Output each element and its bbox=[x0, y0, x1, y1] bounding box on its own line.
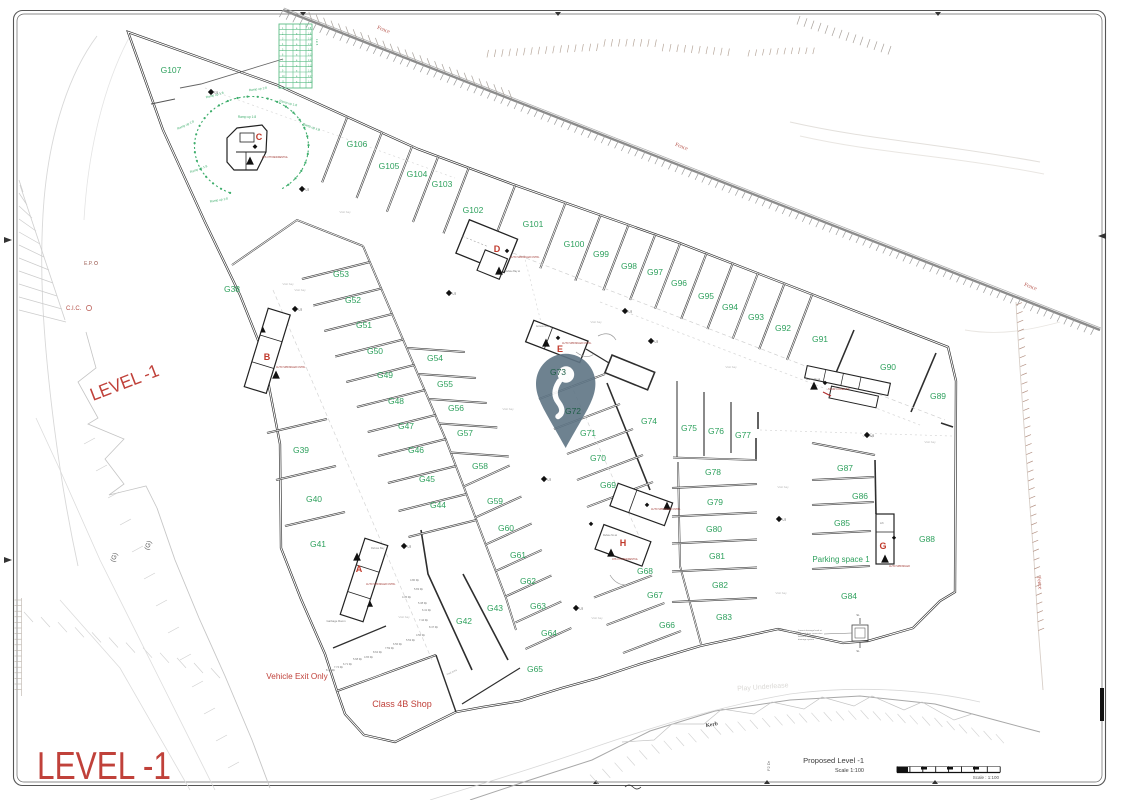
svg-text:drainage system: drainage system bbox=[798, 638, 814, 641]
svg-text:8.47 Rp: 8.47 Rp bbox=[429, 625, 439, 629]
svg-text:G63: G63 bbox=[530, 601, 546, 611]
svg-text:6.41 Rp: 6.41 Rp bbox=[422, 608, 432, 612]
svg-text:G61: G61 bbox=[510, 550, 526, 560]
svg-text:7.59 Rp: 7.59 Rp bbox=[385, 646, 395, 650]
svg-text:B: B bbox=[264, 352, 271, 362]
svg-text:Visit bay: Visit bay bbox=[591, 616, 603, 620]
svg-text:LS: LS bbox=[215, 91, 219, 95]
svg-text:4.65 Rp: 4.65 Rp bbox=[364, 655, 374, 659]
svg-text:covered drain connection: covered drain connection bbox=[798, 632, 823, 635]
svg-text:G46: G46 bbox=[408, 445, 424, 455]
svg-text:G73: G73 bbox=[550, 367, 566, 377]
svg-text:Scale : 1:100: Scale : 1:100 bbox=[973, 775, 1000, 780]
svg-text:AUTO SPRINKLER CNTRL: AUTO SPRINKLER CNTRL bbox=[366, 583, 396, 586]
svg-text:Visit bay: Visit bay bbox=[294, 288, 306, 292]
svg-text:G51: G51 bbox=[356, 320, 372, 330]
svg-text:G47: G47 bbox=[398, 421, 414, 431]
svg-text:Visit bay: Visit bay bbox=[777, 485, 789, 489]
svg-text:G92: G92 bbox=[775, 323, 791, 333]
svg-text:Refuse Bay at: Refuse Bay at bbox=[505, 270, 520, 273]
svg-text:G89: G89 bbox=[930, 391, 946, 401]
svg-text:Vehicle Exit Only: Vehicle Exit Only bbox=[266, 672, 328, 681]
svg-text:LS: LS bbox=[408, 545, 412, 549]
svg-text:LS: LS bbox=[655, 340, 659, 344]
svg-text:6.71 Rp: 6.71 Rp bbox=[343, 662, 353, 666]
svg-text:G74: G74 bbox=[641, 416, 657, 426]
svg-text:G85: G85 bbox=[834, 518, 850, 528]
svg-text:G68: G68 bbox=[637, 566, 653, 576]
svg-text:LEVEL -1: LEVEL -1 bbox=[37, 745, 171, 788]
svg-text:Visit bay: Visit bay bbox=[775, 591, 787, 595]
svg-text:G105: G105 bbox=[379, 161, 400, 171]
svg-text:7.74 Rp: 7.74 Rp bbox=[334, 665, 344, 669]
svg-text:G80: G80 bbox=[706, 524, 722, 534]
svg-text:LS: LS bbox=[783, 518, 787, 522]
svg-text:G79: G79 bbox=[707, 497, 723, 507]
svg-text:G97: G97 bbox=[647, 267, 663, 277]
svg-text:G98: G98 bbox=[621, 261, 637, 271]
svg-text:G103: G103 bbox=[432, 179, 453, 189]
svg-text:AUTO SPRINKLER CNTRL: AUTO SPRINKLER CNTRL bbox=[276, 366, 306, 369]
svg-text:G45: G45 bbox=[419, 474, 435, 484]
svg-text:Visit bay: Visit bay bbox=[282, 282, 294, 286]
svg-text:G49: G49 bbox=[377, 370, 393, 380]
svg-text:4.80 Rp: 4.80 Rp bbox=[410, 578, 420, 582]
svg-text:7.44 Rp: 7.44 Rp bbox=[419, 618, 429, 622]
svg-text:G94: G94 bbox=[722, 302, 738, 312]
svg-text:G77: G77 bbox=[735, 430, 751, 440]
svg-text:LS: LS bbox=[580, 607, 584, 611]
svg-text:G62: G62 bbox=[520, 576, 536, 586]
svg-text:1:14: 1:14 bbox=[308, 60, 313, 62]
svg-text:H: H bbox=[620, 538, 627, 548]
svg-text:Garbage Room: Garbage Room bbox=[326, 619, 346, 623]
svg-text:G96: G96 bbox=[671, 278, 687, 288]
svg-text:G69: G69 bbox=[600, 480, 616, 490]
svg-text:Access No at: Access No at bbox=[806, 378, 820, 381]
svg-text:Visit bay: Visit bay bbox=[924, 440, 936, 444]
svg-text:G104: G104 bbox=[407, 169, 428, 179]
svg-text:5.83 Rp: 5.83 Rp bbox=[414, 587, 424, 591]
svg-text:G55: G55 bbox=[437, 379, 453, 389]
svg-text:G84: G84 bbox=[841, 591, 857, 601]
svg-text:5.53 Rp: 5.53 Rp bbox=[406, 638, 416, 642]
svg-text:G76: G76 bbox=[708, 426, 724, 436]
svg-text:Lowest drainage level at: Lowest drainage level at bbox=[798, 629, 822, 632]
svg-text:G102: G102 bbox=[463, 205, 484, 215]
svg-text:G72: G72 bbox=[565, 406, 581, 416]
svg-text:AUTO SPRINKLER CNTRL: AUTO SPRINKLER CNTRL bbox=[651, 508, 681, 511]
svg-text:G83: G83 bbox=[716, 612, 732, 622]
svg-text:AUTO SPRINKLER CNTRL: AUTO SPRINKLER CNTRL bbox=[562, 342, 592, 345]
svg-text:A: A bbox=[356, 564, 363, 574]
svg-text:G99: G99 bbox=[593, 249, 609, 259]
svg-text:ATS 4TH RESIDENTIAL: ATS 4TH RESIDENTIAL bbox=[262, 156, 289, 159]
svg-text:G93: G93 bbox=[748, 312, 764, 322]
svg-text:LS: LS bbox=[299, 308, 303, 312]
svg-text:LS: LS bbox=[871, 434, 875, 438]
svg-text:G106: G106 bbox=[347, 139, 368, 149]
svg-text:G107: G107 bbox=[161, 65, 182, 75]
svg-text:G64: G64 bbox=[541, 628, 557, 638]
svg-text:G67: G67 bbox=[647, 590, 663, 600]
svg-text:C: C bbox=[256, 132, 263, 142]
svg-text:G60: G60 bbox=[498, 523, 514, 533]
svg-text:SL: SL bbox=[856, 649, 860, 653]
svg-text:Scale 1:100: Scale 1:100 bbox=[835, 768, 864, 774]
svg-text:E: E bbox=[557, 344, 563, 354]
svg-text:G82: G82 bbox=[712, 580, 728, 590]
svg-text:Proposed Level -1: Proposed Level -1 bbox=[803, 756, 864, 765]
svg-text:G57: G57 bbox=[457, 428, 473, 438]
svg-text:G81: G81 bbox=[709, 551, 725, 561]
svg-text:SL: SL bbox=[856, 613, 860, 617]
svg-text:Refuse Bay: Refuse Bay bbox=[371, 546, 385, 550]
svg-text:G65: G65 bbox=[527, 664, 543, 674]
svg-text:G58: G58 bbox=[472, 461, 488, 471]
svg-text:G42: G42 bbox=[456, 616, 472, 626]
svg-text:G59: G59 bbox=[487, 496, 503, 506]
svg-text:Visit bay: Visit bay bbox=[725, 365, 737, 369]
svg-text:Visit bay: Visit bay bbox=[398, 615, 410, 619]
svg-text:Visit bay: Visit bay bbox=[590, 320, 602, 324]
svg-text:LS: LS bbox=[548, 478, 552, 482]
svg-text:G78: G78 bbox=[705, 467, 721, 477]
svg-text:LS: LS bbox=[306, 188, 310, 192]
svg-text:D: D bbox=[494, 244, 501, 254]
svg-text:Ramp up 1:8: Ramp up 1:8 bbox=[238, 115, 256, 119]
svg-text:G50: G50 bbox=[367, 346, 383, 356]
svg-text:1:11: 1:11 bbox=[308, 44, 313, 46]
svg-text:linked to approved: linked to approved bbox=[798, 635, 817, 638]
svg-text:G88: G88 bbox=[919, 534, 935, 544]
svg-text:G54: G54 bbox=[427, 353, 443, 363]
svg-text:C.I.C.: C.I.C. bbox=[66, 306, 82, 312]
svg-text:1:15: 1:15 bbox=[308, 65, 313, 67]
svg-text:4.50 Rp: 4.50 Rp bbox=[416, 633, 426, 637]
svg-text:G56: G56 bbox=[448, 403, 464, 413]
svg-text:G90: G90 bbox=[880, 362, 896, 372]
svg-text:G95: G95 bbox=[698, 291, 714, 301]
svg-text:5.68 Rp: 5.68 Rp bbox=[353, 657, 363, 661]
svg-text:ATS 4TH RESIDENTIAL: ATS 4TH RESIDENTIAL bbox=[612, 558, 639, 561]
svg-text:G86: G86 bbox=[852, 491, 868, 501]
svg-text:G100: G100 bbox=[564, 239, 585, 249]
svg-text:LS: LS bbox=[453, 292, 457, 296]
svg-text:1:16: 1:16 bbox=[308, 71, 313, 73]
svg-text:G38: G38 bbox=[224, 284, 240, 294]
svg-text:G: G bbox=[879, 541, 886, 551]
svg-text:8.62 Rp: 8.62 Rp bbox=[373, 650, 383, 654]
svg-text:G48: G48 bbox=[388, 396, 404, 406]
svg-text:Visit bay: Visit bay bbox=[502, 407, 514, 411]
svg-text:6.56 Rp: 6.56 Rp bbox=[393, 642, 403, 646]
svg-text:G70: G70 bbox=[590, 453, 606, 463]
svg-text:Refuse No at: Refuse No at bbox=[603, 534, 617, 537]
svg-text:AUTO SPRINKLER: AUTO SPRINKLER bbox=[889, 565, 910, 568]
svg-text:LS: LS bbox=[629, 310, 633, 314]
svg-text:G75: G75 bbox=[681, 423, 697, 433]
svg-text:1:18: 1:18 bbox=[308, 81, 313, 83]
svg-text:5.38 Rp: 5.38 Rp bbox=[418, 601, 428, 605]
svg-text:G71: G71 bbox=[580, 428, 596, 438]
svg-text:STAIR CORE/LIFT: STAIR CORE/LIFT bbox=[828, 387, 850, 391]
svg-text:Class 4B Shop: Class 4B Shop bbox=[372, 699, 432, 709]
svg-text:G87: G87 bbox=[837, 463, 853, 473]
svg-text:1:10: 1:10 bbox=[308, 39, 313, 41]
svg-text:Lift: Lift bbox=[880, 521, 884, 525]
svg-text:4.35 Rp: 4.35 Rp bbox=[402, 595, 412, 599]
svg-text:1:13: 1:13 bbox=[308, 55, 313, 57]
svg-text:G43: G43 bbox=[487, 603, 503, 613]
svg-text:Access No at: Access No at bbox=[536, 325, 550, 328]
svg-text:E.P.: E.P. bbox=[84, 261, 93, 267]
svg-text:F2 Dr: F2 Dr bbox=[766, 760, 771, 771]
svg-text:G91: G91 bbox=[812, 334, 828, 344]
svg-text:G44: G44 bbox=[430, 500, 446, 510]
svg-text:G66: G66 bbox=[659, 620, 675, 630]
svg-text:G52: G52 bbox=[345, 295, 361, 305]
svg-text:G41: G41 bbox=[310, 539, 326, 549]
svg-text:G53: G53 bbox=[333, 269, 349, 279]
svg-text:G101: G101 bbox=[523, 219, 544, 229]
svg-text:G39: G39 bbox=[293, 445, 309, 455]
svg-text:1:17: 1:17 bbox=[308, 76, 313, 78]
svg-text:AUTO SPRINKLER CNTRL: AUTO SPRINKLER CNTRL bbox=[510, 256, 540, 259]
svg-text:1:12: 1:12 bbox=[308, 49, 313, 51]
svg-text:G40: G40 bbox=[306, 494, 322, 504]
svg-text:1 in 8: 1 in 8 bbox=[315, 39, 319, 46]
svg-text:Visit bay: Visit bay bbox=[339, 210, 351, 214]
svg-text:Parking space 1: Parking space 1 bbox=[812, 555, 870, 564]
